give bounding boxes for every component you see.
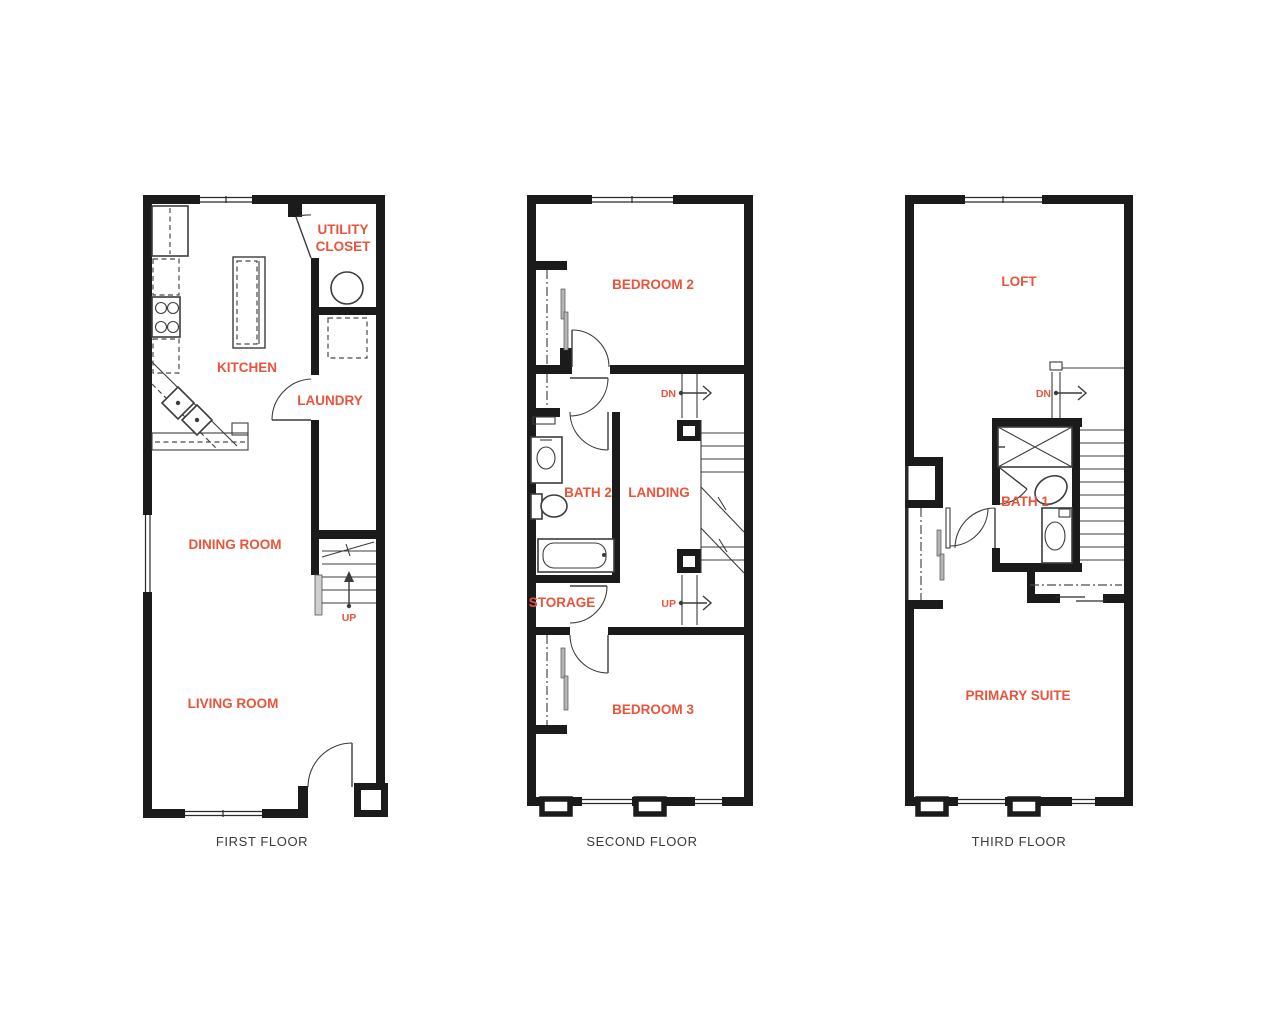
bedroom3-closet: [547, 635, 568, 725]
floor-caption: THIRD FLOOR: [972, 834, 1067, 849]
refrigerator-icon: [152, 206, 188, 256]
third-floor-plan: LOFT DN BATH 1 PRIMARY SUITE THIRD FLOOR: [905, 195, 1133, 849]
floor-caption: FIRST FLOOR: [216, 834, 308, 849]
up-arrow: [679, 596, 711, 610]
dn-label: DN: [661, 388, 676, 400]
living-room-label: LIVING ROOM: [188, 696, 279, 711]
landing-label: LANDING: [628, 485, 690, 500]
floorplan-sheet: UTILITY CLOSET KITCHEN LAUNDRY DINING RO…: [0, 0, 1280, 1014]
kitchen-island: [233, 257, 265, 348]
dn-arrow: [1054, 386, 1086, 400]
bath1-vanity-icon: [1042, 508, 1072, 563]
first-floor-plan: UTILITY CLOSET KITCHEN LAUNDRY DINING RO…: [143, 195, 385, 849]
bath2-toilet-icon: [531, 494, 567, 519]
primary-suite-label: PRIMARY SUITE: [965, 688, 1070, 703]
bath1-label: BATH 1: [1001, 494, 1049, 509]
utility-closet-label-2: CLOSET: [316, 239, 372, 254]
bedroom2-door: [572, 330, 609, 367]
second-floor-plan: BEDROOM 2 DN BATH 2 LANDING STORAGE UP B…: [527, 195, 753, 849]
bay-window-box: [636, 799, 664, 814]
bay-window-box: [1010, 799, 1038, 814]
entry-door: [308, 743, 385, 814]
first-floor-windows: [143, 195, 262, 818]
bath2-door: [570, 412, 608, 450]
dn-label: DN: [1036, 388, 1051, 400]
dn-arrow: [679, 386, 711, 400]
bath2-label: BATH 2: [564, 485, 612, 500]
storage-label: STORAGE: [529, 595, 596, 610]
bedroom3-door: [570, 635, 608, 673]
bedroom3-label: BEDROOM 3: [612, 702, 694, 717]
wardrobe-closet: [921, 508, 988, 600]
dining-room-label: DINING ROOM: [189, 537, 282, 552]
floor-caption: SECOND FLOOR: [586, 834, 697, 849]
bath1-door: [955, 508, 995, 548]
utility-closet-door: [296, 215, 311, 258]
bedroom2-label: BEDROOM 2: [612, 277, 694, 292]
floor-plans-svg: UTILITY CLOSET KITCHEN LAUNDRY DINING RO…: [0, 0, 1280, 1014]
bay-window-box: [918, 799, 946, 814]
up-label: UP: [661, 598, 676, 610]
kitchen-label: KITCHEN: [217, 360, 277, 375]
first-floor-stairs: [315, 542, 376, 615]
shower-icon: [998, 427, 1072, 467]
utility-closet-label-1: UTILITY: [318, 222, 369, 237]
corner-sink-icon: [162, 387, 212, 435]
bay-window-box: [542, 799, 570, 814]
stove-icon: [152, 297, 180, 337]
up-label: UP: [342, 612, 357, 624]
washer-dryer-icon: [328, 318, 367, 358]
laundry-label: LAUNDRY: [297, 393, 363, 408]
bath2-vanity-icon: [531, 437, 562, 483]
loft-label: LOFT: [1001, 274, 1037, 289]
bath2-tub-icon: [538, 539, 614, 572]
water-heater-icon: [331, 272, 363, 304]
entry-pillar: [358, 787, 385, 814]
